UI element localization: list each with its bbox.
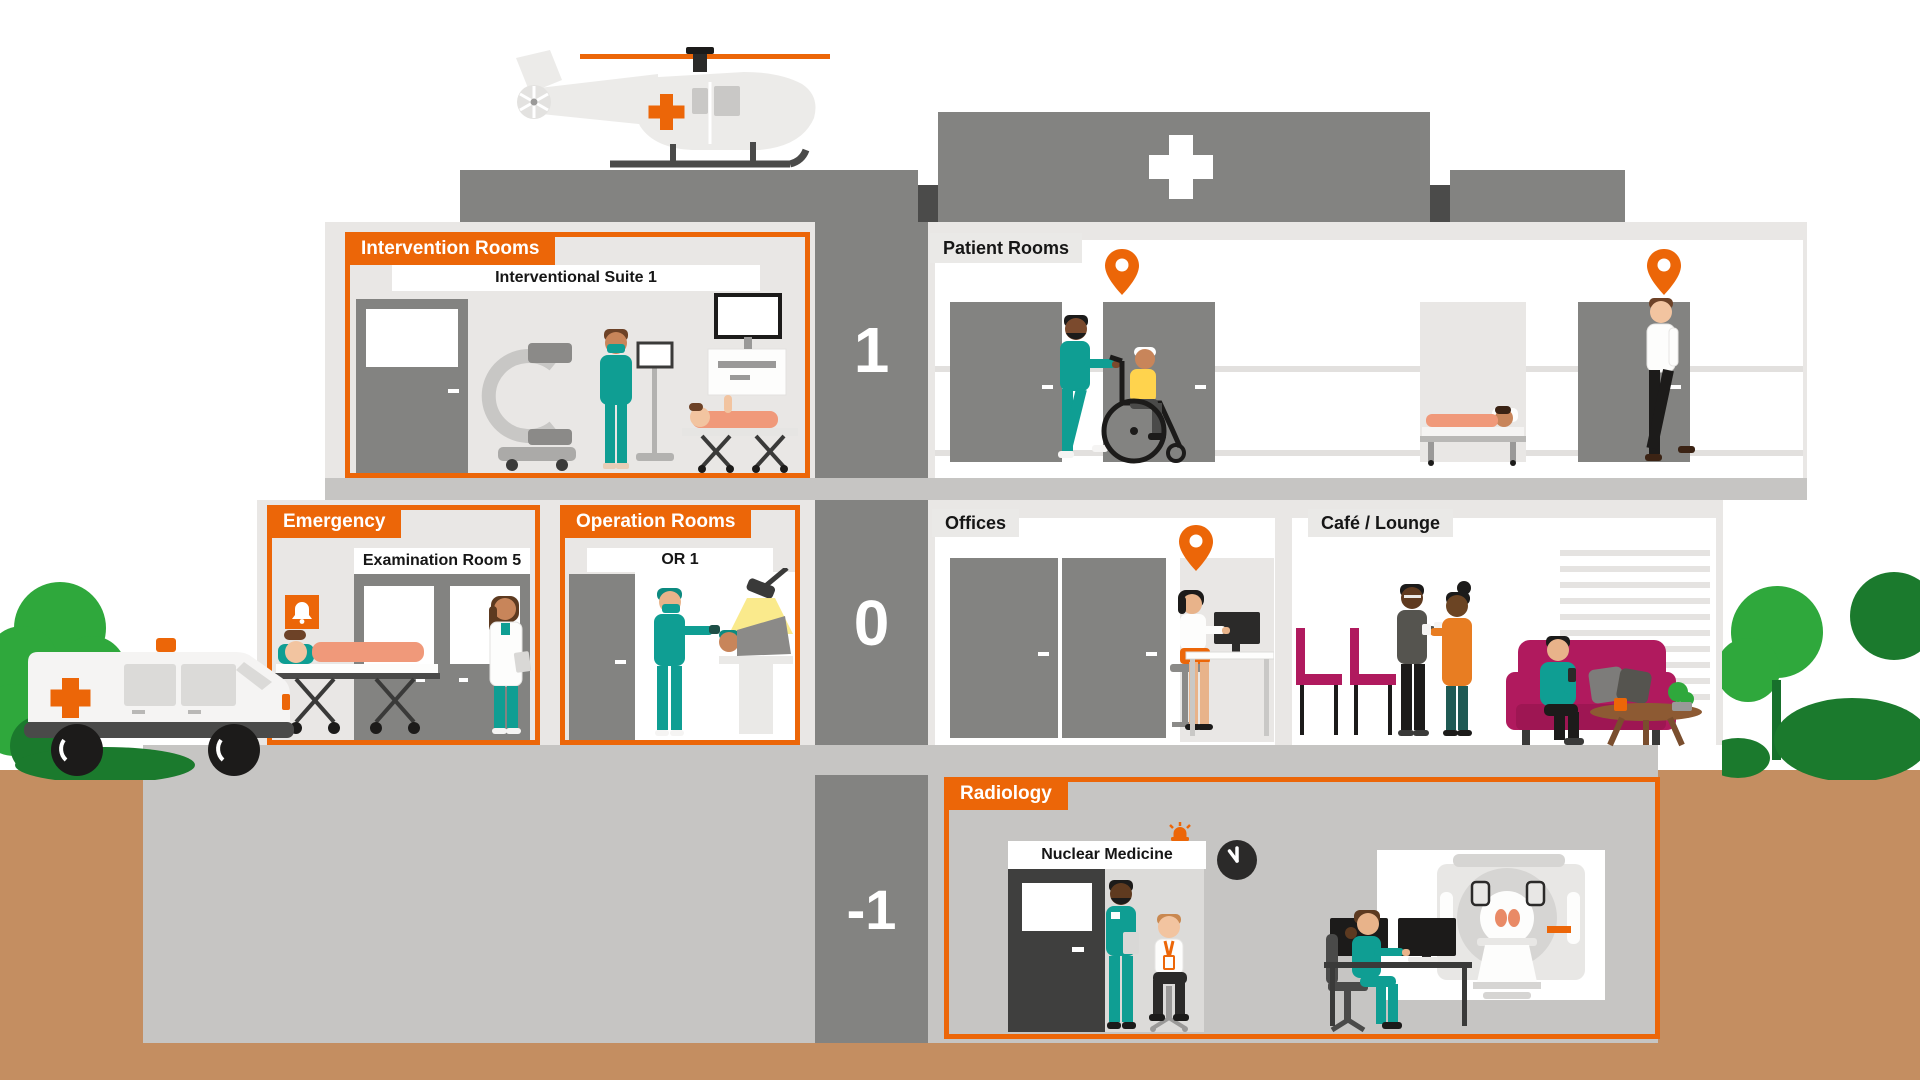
or1-label: OR 1 (587, 548, 773, 572)
emergency-tab[interactable]: Emergency (267, 505, 401, 538)
intervention-suite-scene (468, 291, 805, 473)
examination-room-label: Examination Room 5 (354, 548, 530, 574)
patient-rooms-label: Patient Rooms (930, 233, 1082, 263)
patient-room-door (950, 302, 1062, 462)
location-pin-icon[interactable] (1646, 248, 1682, 296)
floor1-slab (325, 478, 1807, 500)
emergency-box: Emergency Examination Room 5 (267, 505, 540, 745)
nuclear-nurse-figure (1101, 878, 1143, 1030)
radiology-box: Radiology Nuclear Medicine (944, 777, 1660, 1039)
roof-right (1450, 170, 1625, 222)
wall-clock-icon (1217, 840, 1257, 880)
office-desk-scene (1156, 552, 1274, 742)
elevator-shaft-floor0: 0 (815, 500, 928, 745)
nuclear-medicine-label: Nuclear Medicine (1008, 841, 1206, 869)
lounge-sofa-scene (1506, 628, 1721, 748)
radiology-workstation (1320, 900, 1495, 1034)
roof-dark-block-left (918, 185, 938, 222)
operating-scene (635, 568, 795, 740)
floor-number-0: 0 (854, 586, 890, 660)
intervention-rooms-box: Intervention Rooms Interventional Suite … (345, 232, 810, 478)
location-pin-icon[interactable] (1104, 248, 1140, 296)
intervention-rooms-tab[interactable]: Intervention Rooms (345, 232, 555, 265)
seated-patient-figure (1141, 914, 1197, 1032)
floor-number-minus1: -1 (847, 877, 897, 942)
patient-in-bed (1418, 396, 1528, 466)
operation-rooms-box: Operation Rooms OR 1 (560, 505, 800, 745)
intervention-door (356, 299, 468, 473)
nurse-pushing-wheelchair (1048, 303, 1203, 471)
elevator-shaft-floor1: 1 (815, 222, 928, 478)
walking-visitor (1622, 296, 1702, 468)
office-door (950, 558, 1058, 738)
cafe-waiting-group (1294, 568, 1479, 740)
cafe-label: Café / Lounge (1308, 509, 1453, 537)
trees-right (1722, 550, 1920, 780)
floor-number-1: 1 (854, 313, 890, 387)
hospital-sign-block (938, 112, 1430, 222)
elevator-shaft-basement: -1 (815, 775, 928, 1043)
office-door (1062, 558, 1166, 738)
alarm-bell-icon[interactable] (285, 595, 319, 629)
ambulance-icon (20, 632, 300, 782)
radiology-tab[interactable]: Radiology (944, 777, 1068, 810)
hospital-cross-section: Patient Rooms 1 Intervention Rooms Inter… (0, 0, 1920, 1080)
interventional-suite-label: Interventional Suite 1 (392, 265, 760, 291)
doctor-figure (477, 592, 535, 740)
emergency-beacon-icon (1169, 822, 1191, 842)
offices-label: Offices (932, 509, 1019, 537)
nuclear-medicine-door (1008, 869, 1105, 1032)
roof-dark-block-right (1430, 185, 1450, 222)
or-door (569, 574, 635, 740)
operation-rooms-tab[interactable]: Operation Rooms (560, 505, 751, 538)
helicopter-icon (430, 38, 830, 178)
location-pin-icon[interactable] (1178, 524, 1214, 572)
